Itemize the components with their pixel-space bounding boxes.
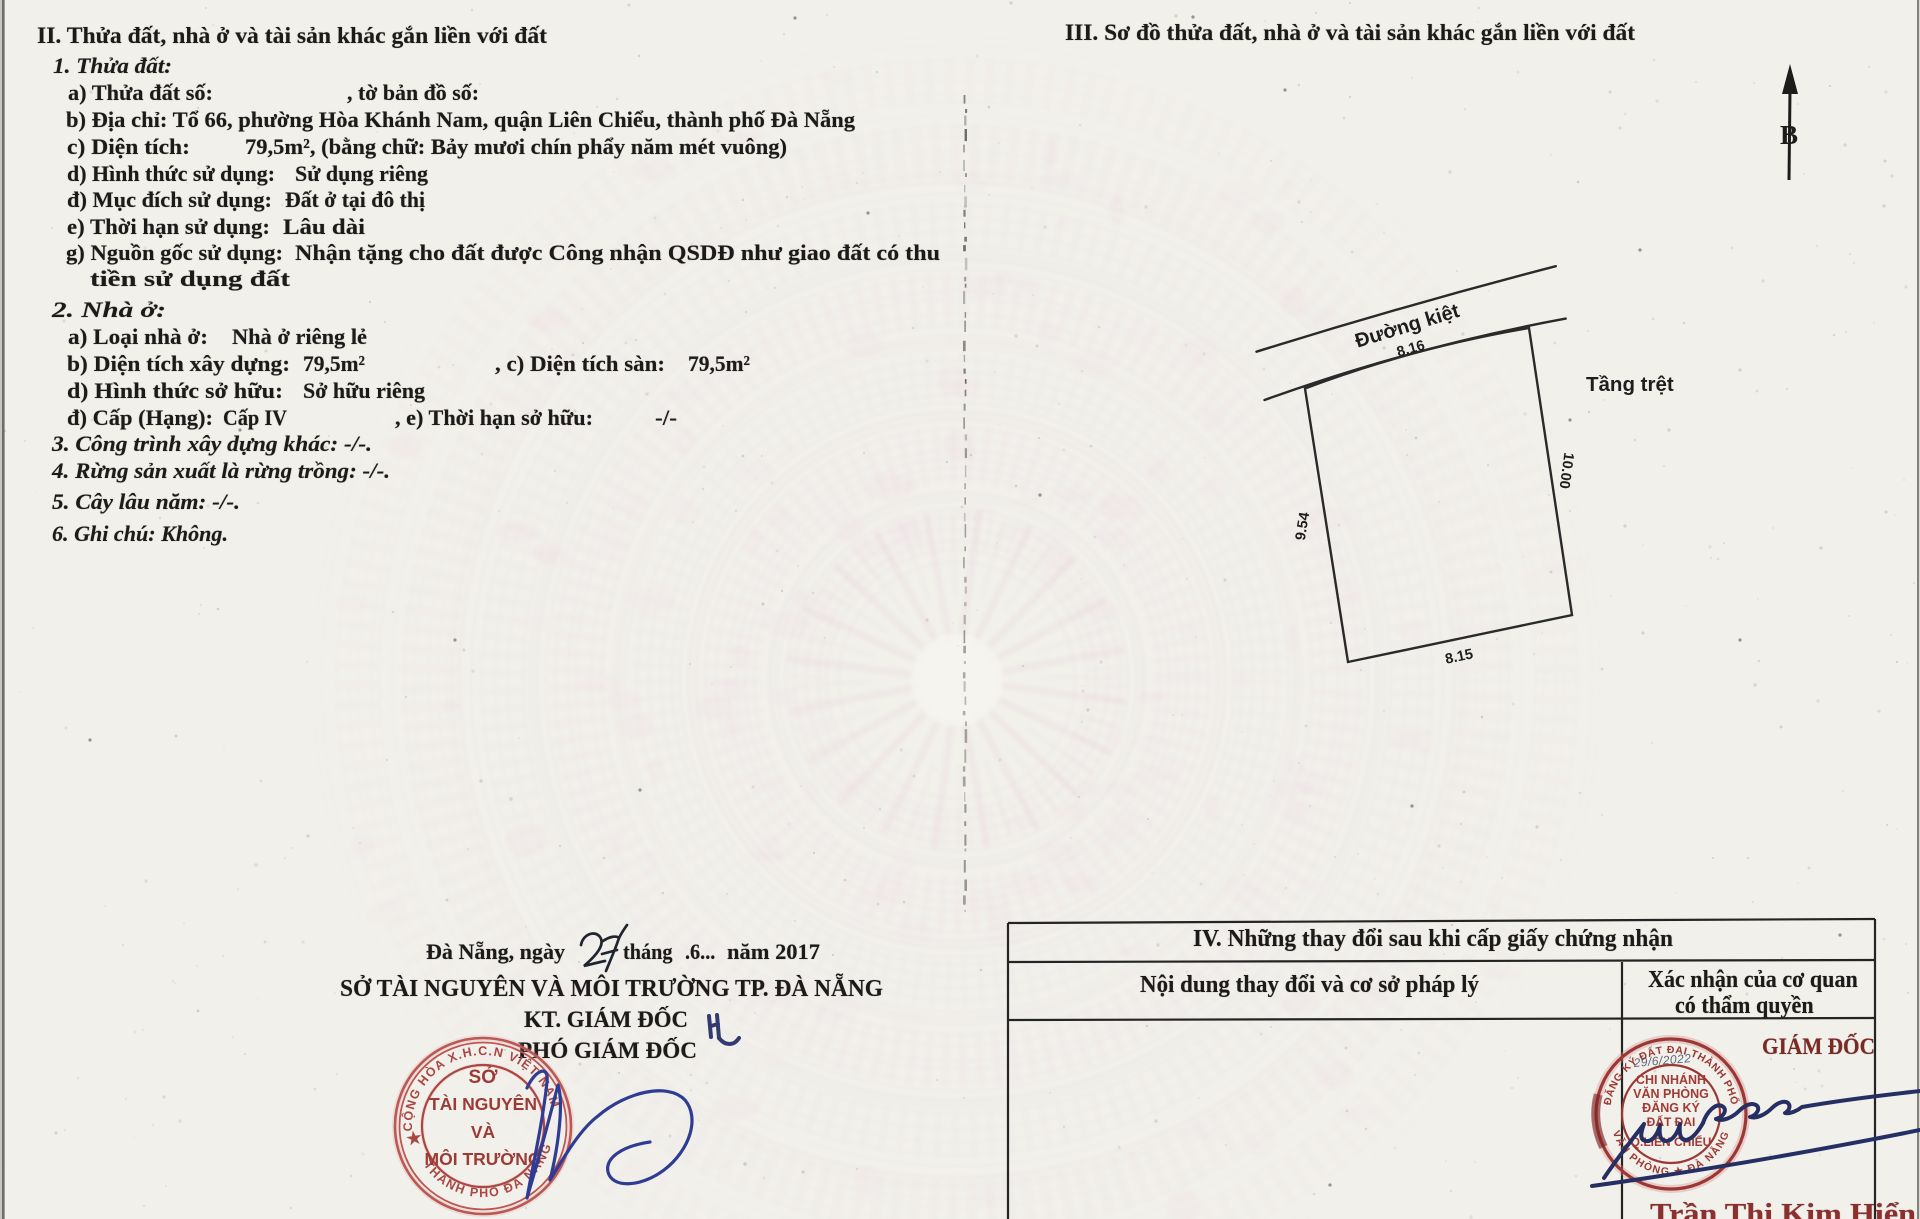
svg-text:VÀ: VÀ (471, 1121, 496, 1142)
svg-text:ĐĂNG KÝ: ĐĂNG KÝ (1642, 1100, 1700, 1115)
svg-text:10.00: 10.00 (1556, 451, 1577, 489)
svg-text:8.15: 8.15 (1444, 646, 1475, 668)
svg-text:9.54: 9.54 (1293, 511, 1313, 541)
svg-text:CHI NHÁNH: CHI NHÁNH (1636, 1072, 1706, 1087)
svg-text:ĐẤT ĐAI: ĐẤT ĐAI (1647, 1114, 1696, 1129)
svg-text:MÔI TRƯỜNG: MÔI TRƯỜNG (425, 1148, 542, 1169)
svg-text:SỞ: SỞ (469, 1066, 499, 1088)
svg-text:Tầng trệt: Tầng trệt (1586, 373, 1674, 396)
svg-text:TÀI NGUYÊN: TÀI NGUYÊN (429, 1093, 537, 1114)
svg-text:B: B (1780, 120, 1798, 150)
svg-text:8.16: 8.16 (1395, 338, 1427, 361)
svg-text:VĂN PHÒNG: VĂN PHÒNG (1633, 1086, 1709, 1101)
